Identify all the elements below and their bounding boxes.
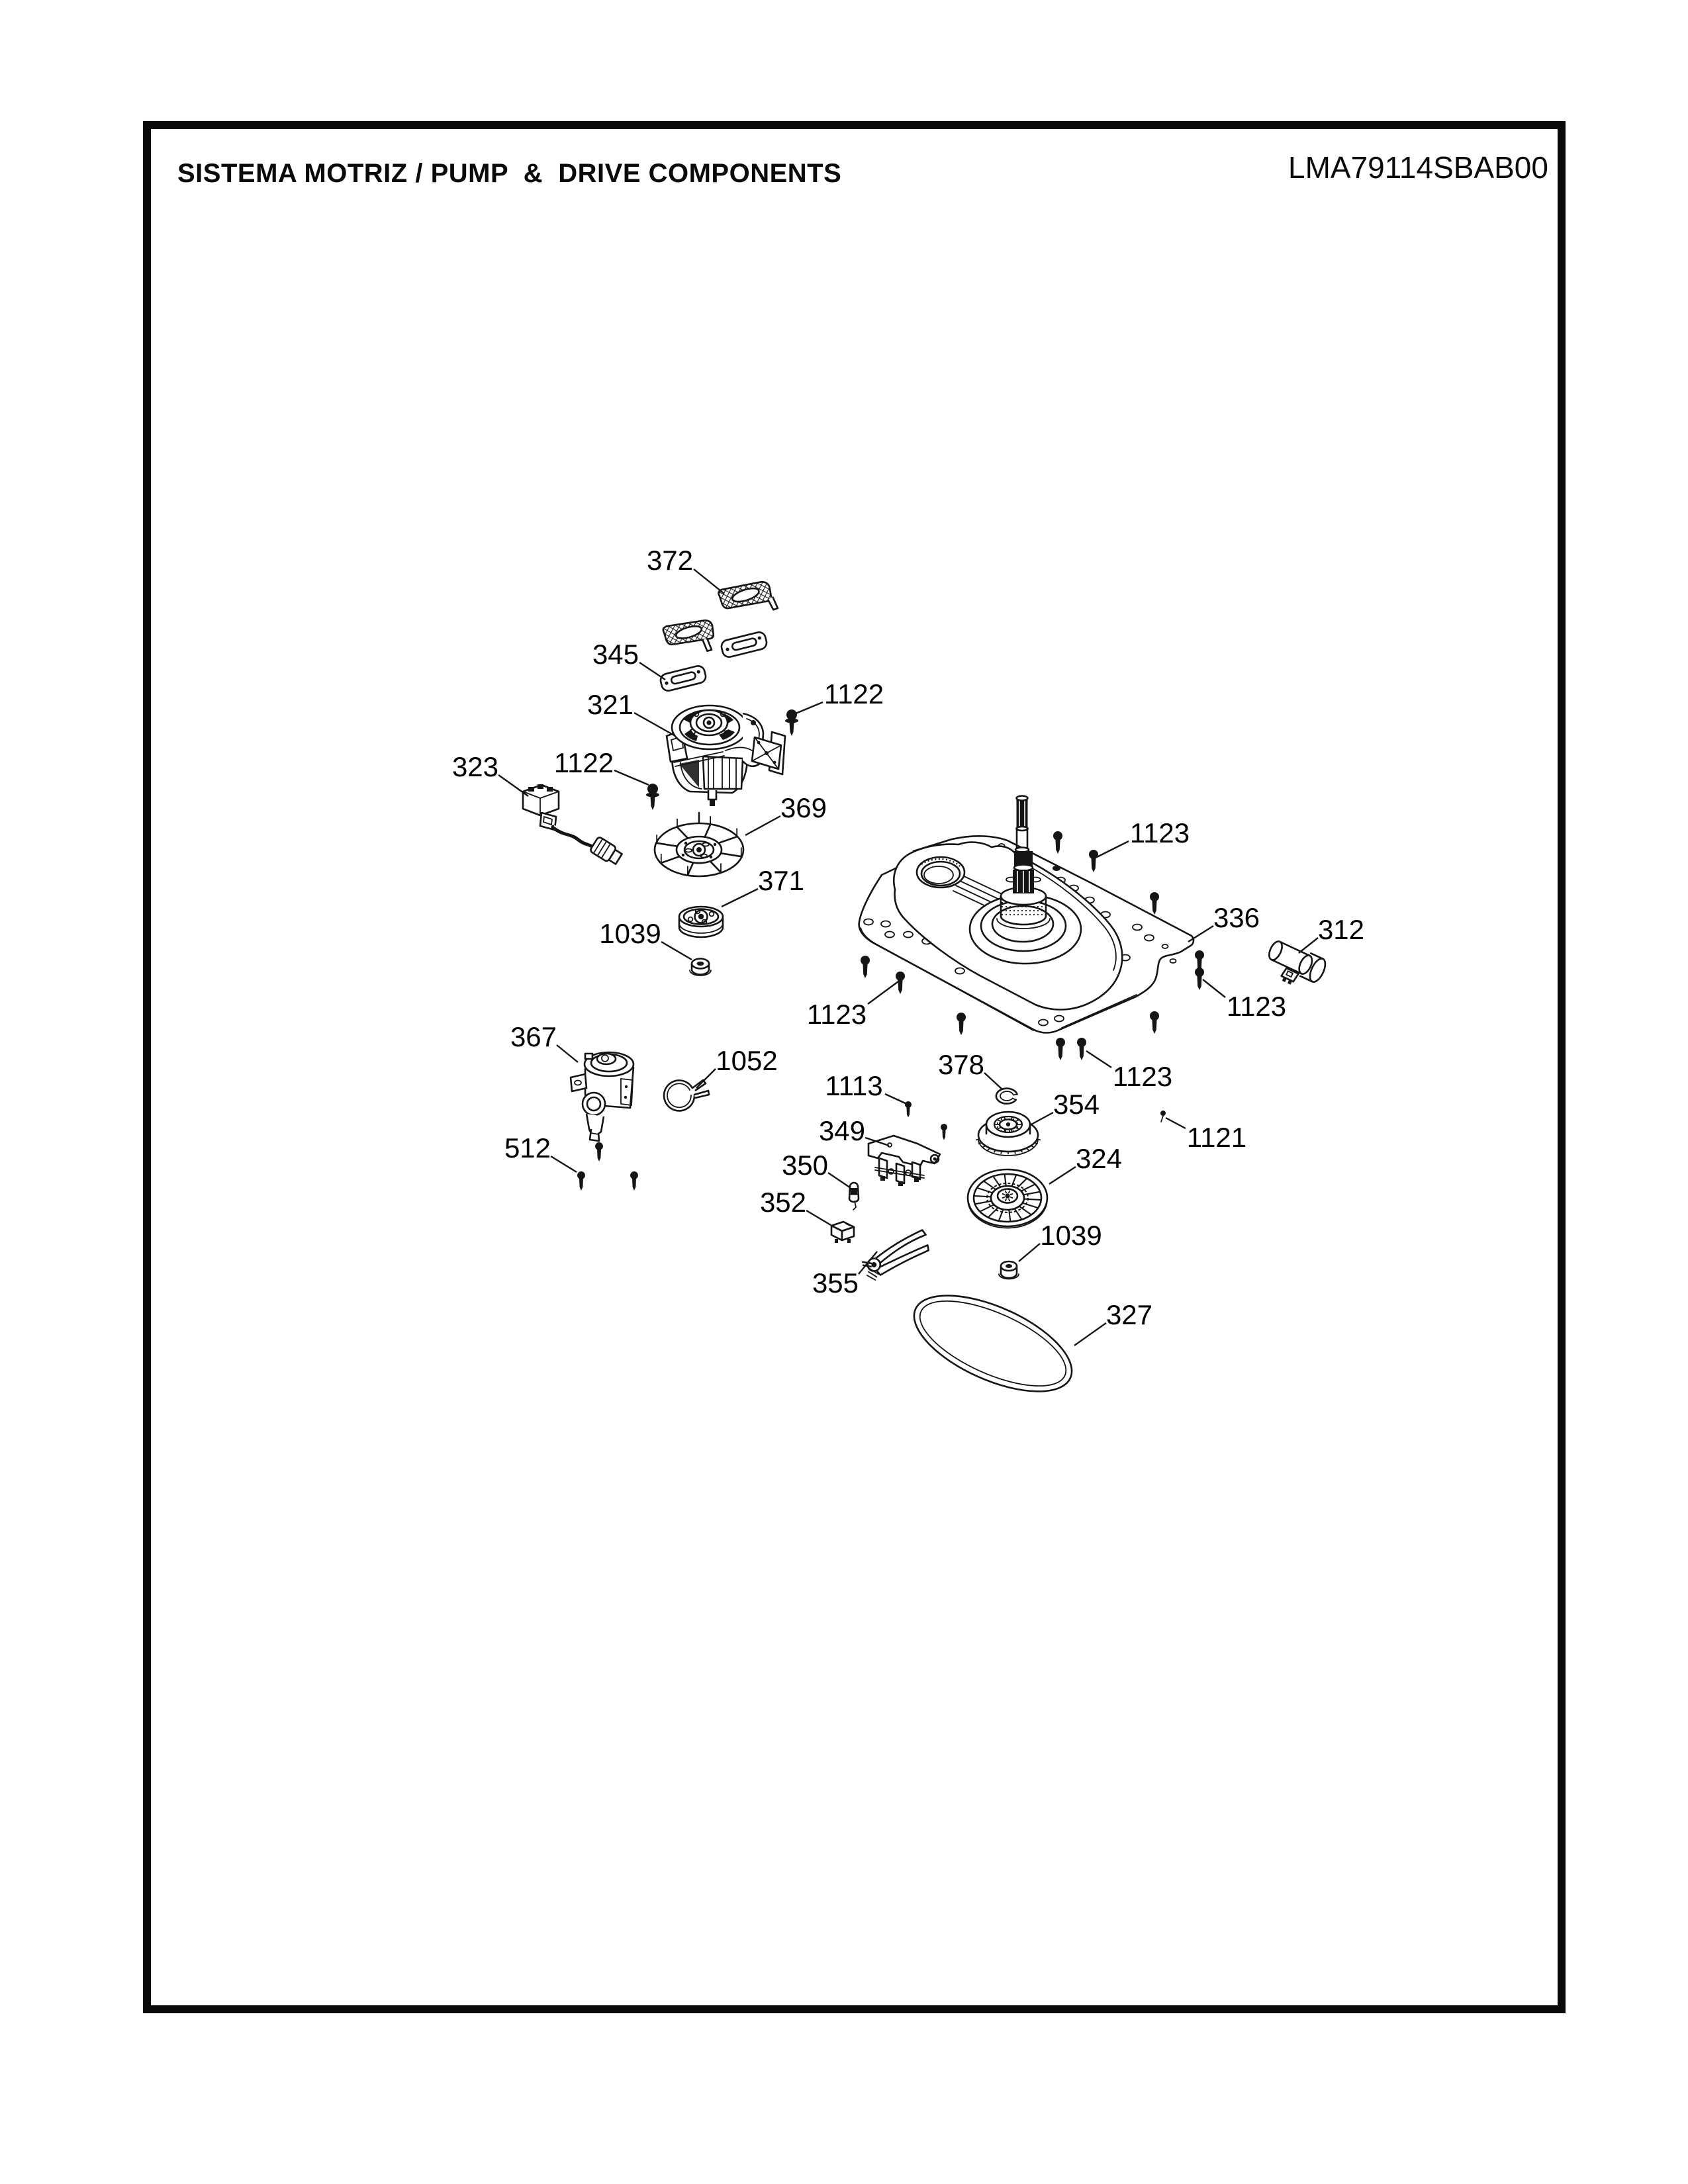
- callout-349-21: 349: [819, 1115, 865, 1146]
- callout-323-5: 323: [452, 751, 498, 782]
- part-355-fork: [859, 1230, 932, 1282]
- callout-327-27: 327: [1106, 1299, 1152, 1330]
- leader-323-5: [498, 775, 528, 796]
- screw-1122-b: [646, 784, 659, 810]
- callout-1121-15: 1121: [1187, 1122, 1246, 1153]
- part-327-belt: [901, 1276, 1086, 1412]
- leader-1121-15: [1166, 1118, 1186, 1128]
- leader-1123-12: [1203, 979, 1225, 997]
- callout-1123-9: 1123: [1130, 817, 1190, 848]
- callout-324-24: 324: [1076, 1143, 1122, 1174]
- leader-1122-4: [614, 770, 649, 785]
- callout-512-28: 512: [504, 1132, 551, 1163]
- leader-378-19: [984, 1073, 1002, 1089]
- part-371-pulley: [679, 907, 723, 937]
- part-345-pad-right: [720, 631, 768, 659]
- part-378-ring: [996, 1089, 1017, 1104]
- callout-369-6: 369: [780, 792, 827, 823]
- callout-367-16: 367: [510, 1021, 557, 1052]
- callout-321-2: 321: [587, 689, 633, 720]
- callout-354-20: 354: [1053, 1089, 1100, 1120]
- callout-1039-8: 1039: [599, 918, 661, 949]
- leader-354-20: [1030, 1113, 1053, 1125]
- part-1052-clamp: [664, 1080, 709, 1111]
- part-367-pump: [571, 1052, 633, 1141]
- part-349-lever-bracket: [868, 1136, 940, 1186]
- callout-371-7: 371: [758, 865, 804, 896]
- part-345-pad: [659, 664, 707, 692]
- leader-321-2: [634, 713, 675, 736]
- leader-327-27: [1074, 1323, 1106, 1345]
- leader-1039-25: [1019, 1244, 1040, 1261]
- callout-312-11: 312: [1318, 914, 1364, 945]
- leader-1122-3: [796, 702, 823, 713]
- leader-352-23: [806, 1210, 831, 1225]
- callout-1123-12: 1123: [1227, 991, 1286, 1022]
- leader-369-6: [745, 816, 780, 835]
- part-321-motor: [667, 705, 785, 806]
- callout-378-19: 378: [938, 1049, 984, 1080]
- leader-350-22: [828, 1173, 851, 1188]
- leader-372-0: [694, 569, 724, 594]
- parts-diagram-page: { "page": { "title": "SISTEMA MOTRIZ / P…: [0, 0, 1688, 2184]
- part-323-harness: [523, 784, 624, 866]
- callout-336-10: 336: [1213, 902, 1260, 933]
- part-352-block: [831, 1222, 854, 1243]
- leader-367-16: [557, 1045, 578, 1062]
- part-1039-nut-lower: [999, 1261, 1019, 1279]
- leader-1123-13: [868, 981, 898, 1004]
- part-324-drive-pulley: [968, 1169, 1047, 1228]
- leader-324-24: [1049, 1167, 1076, 1184]
- callout-1113-18: 1113: [825, 1070, 882, 1101]
- leader-345-1: [639, 662, 665, 680]
- callout-1123-13: 1123: [807, 999, 867, 1030]
- part-1039-nut-upper: [690, 959, 711, 976]
- part-312-roller: [1260, 937, 1329, 995]
- leader-312-11: [1299, 938, 1318, 953]
- leader-1039-8: [661, 942, 692, 960]
- part-354-clutch: [976, 1112, 1041, 1156]
- leader-1123-14: [1086, 1051, 1111, 1068]
- leader-1113-18: [885, 1094, 908, 1105]
- callout-1052-17: 1052: [716, 1045, 777, 1076]
- leader-336-10: [1188, 926, 1213, 942]
- part-372-cover-pad: [718, 575, 778, 625]
- part-369-fan-rotor: [655, 813, 743, 876]
- screw-1121: [1160, 1111, 1166, 1122]
- callout-355-26: 355: [812, 1267, 859, 1298]
- callout-1122-4: 1122: [554, 747, 614, 778]
- callout-350-22: 350: [782, 1150, 828, 1181]
- leader-512-28: [551, 1156, 577, 1172]
- callout-1039-25: 1039: [1040, 1220, 1102, 1251]
- part-350-clip: [849, 1183, 859, 1210]
- leader-371-7: [722, 889, 758, 907]
- leader-1123-9: [1097, 841, 1129, 857]
- callout-345-1: 345: [592, 639, 639, 670]
- callout-352-23: 352: [760, 1187, 806, 1218]
- part-372-pad-lower: [663, 614, 719, 661]
- callout-372-0: 372: [647, 545, 693, 576]
- exploded-parts-diagram: 3723453211122112232336937110391123336312…: [0, 0, 1688, 2184]
- callout-1122-3: 1122: [824, 678, 884, 709]
- leader-1052-17: [696, 1069, 716, 1088]
- callout-1123-14: 1123: [1113, 1061, 1172, 1092]
